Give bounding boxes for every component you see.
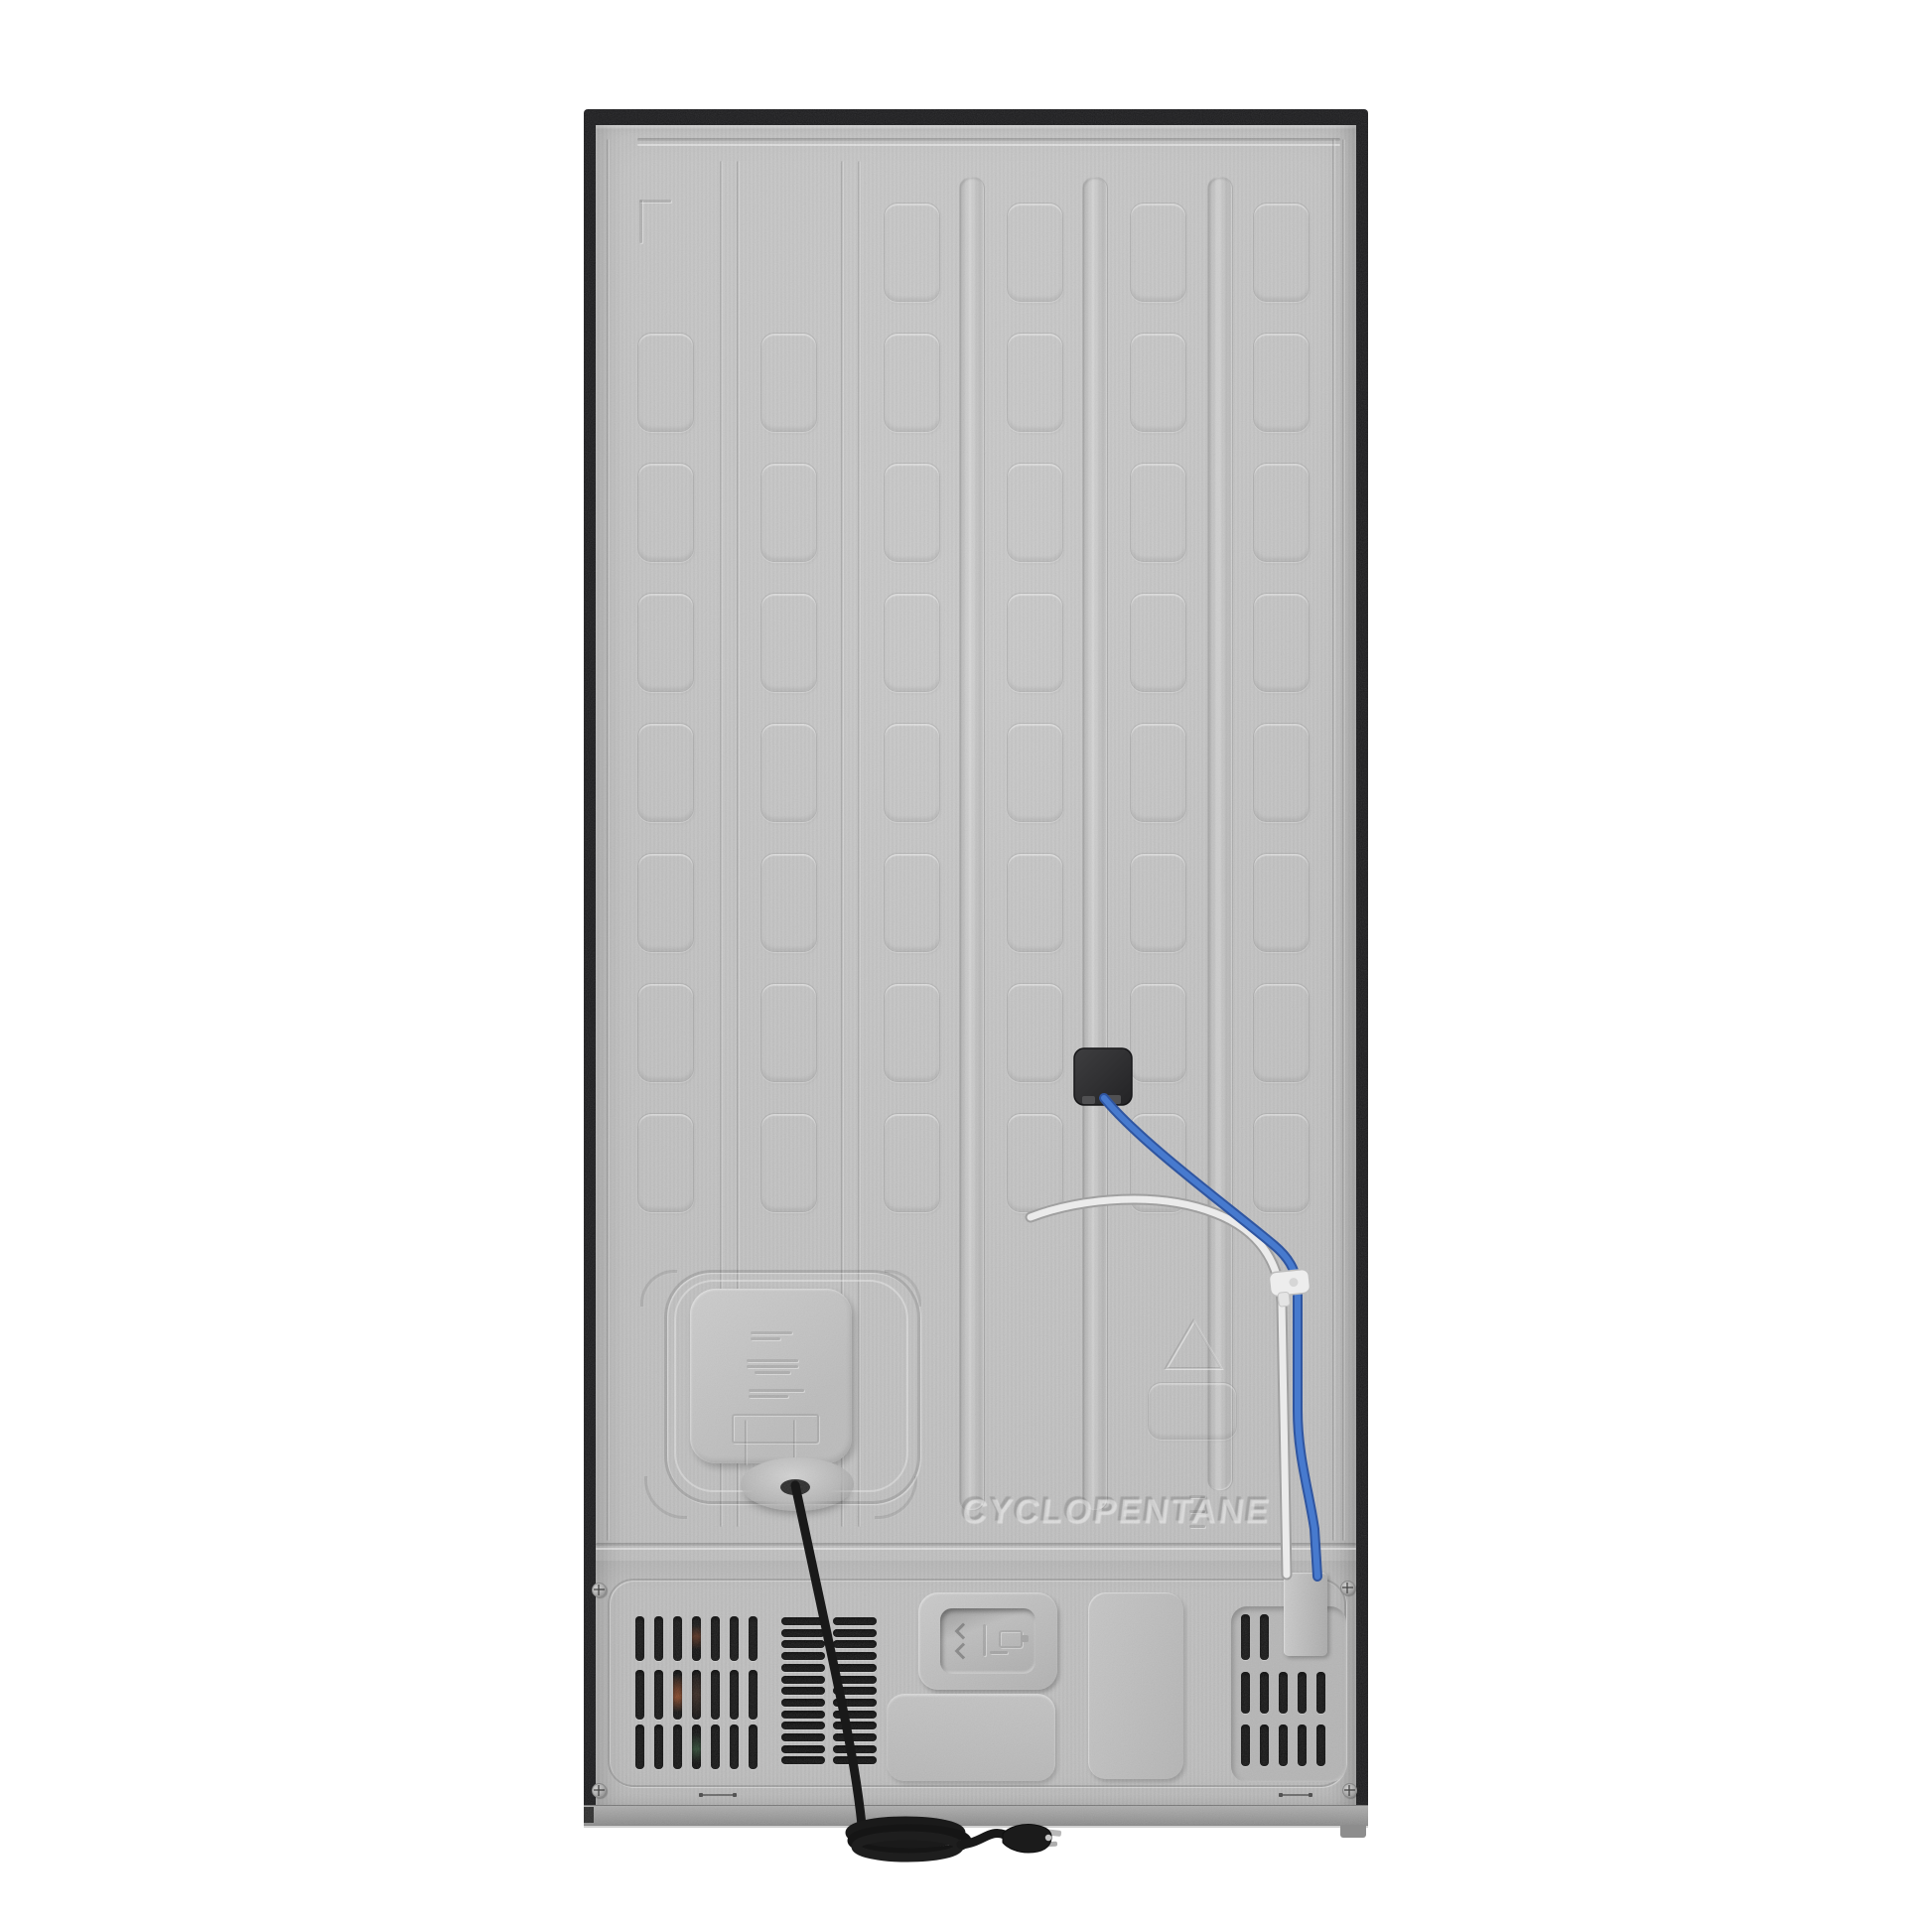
tube-clip bbox=[1269, 1269, 1311, 1308]
drain-tube bbox=[1031, 1199, 1287, 1575]
product-photo-canvas: CYCLOPENTANE bbox=[0, 0, 1932, 1932]
junction-box-notch-1 bbox=[1082, 1096, 1095, 1104]
emboss-triangle bbox=[1166, 1320, 1222, 1369]
power-plug bbox=[1003, 1824, 1061, 1853]
power-cord bbox=[795, 1485, 1005, 1858]
plug-ground-pin bbox=[1045, 1835, 1051, 1841]
wires-overlay bbox=[0, 0, 1932, 1932]
